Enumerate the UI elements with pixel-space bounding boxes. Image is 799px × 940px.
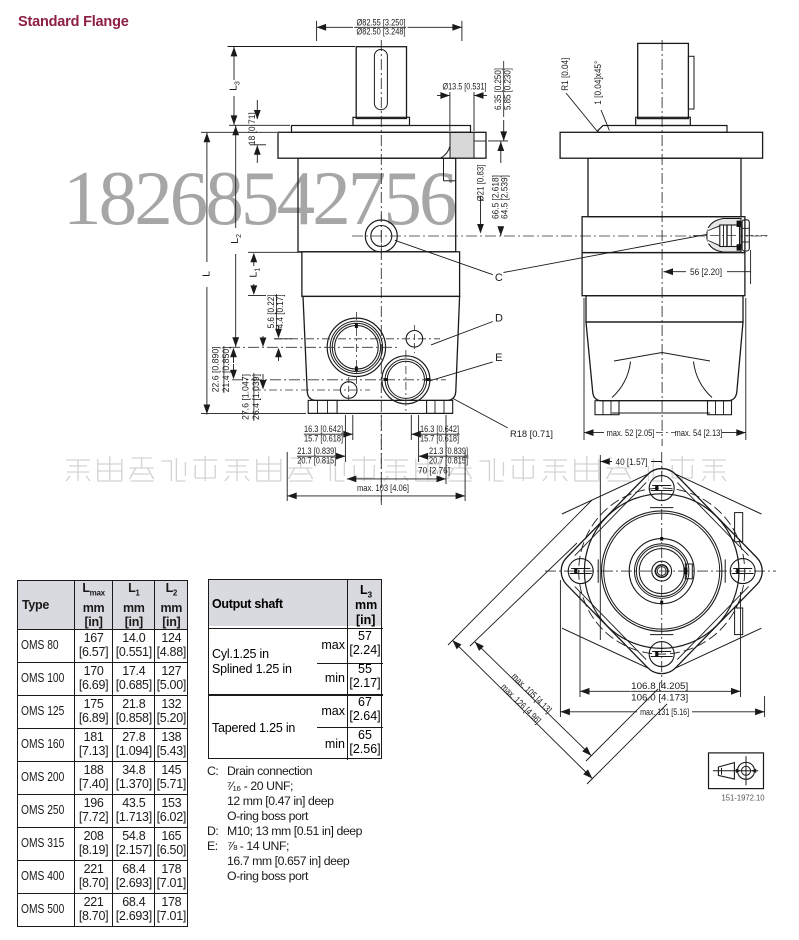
svg-text:E: E	[495, 352, 502, 364]
svg-text:151-1972.10: 151-1972.10	[722, 793, 765, 803]
svg-text:C: C	[495, 272, 503, 284]
svg-text:21.3 [0.839]: 21.3 [0.839]	[429, 446, 468, 456]
svg-text:15.7 [0.618]: 15.7 [0.618]	[420, 434, 459, 444]
svg-text:1: 1	[254, 268, 261, 272]
svg-text:R1 [0.04]: R1 [0.04]	[560, 58, 570, 91]
svg-text:27.6 [1.047]: 27.6 [1.047]	[241, 374, 251, 420]
svg-text:16.3 [0.642]: 16.3 [0.642]	[420, 424, 459, 434]
svg-text:max. 52 [2.05]: max. 52 [2.05]	[607, 428, 655, 438]
svg-text:20.7 [0.815]: 20.7 [0.815]	[297, 456, 336, 466]
svg-text:max. 54 [2.13]: max. 54 [2.13]	[675, 428, 723, 438]
svg-text:70 [2.76]: 70 [2.76]	[418, 465, 450, 475]
svg-text:16.3 [0.642]: 16.3 [0.642]	[304, 424, 343, 434]
svg-text:3: 3	[235, 81, 242, 85]
svg-text:26.4 [1.039]: 26.4 [1.039]	[251, 374, 261, 420]
svg-text:1 [0.04]x45°: 1 [0.04]x45°	[593, 61, 603, 105]
svg-text:21.4 [0.850]: 21.4 [0.850]	[221, 346, 231, 392]
svg-text:18 [0.71]: 18 [0.71]	[247, 112, 257, 145]
svg-text:20.7 [0.815]: 20.7 [0.815]	[429, 456, 468, 466]
svg-text:56 [2.20]: 56 [2.20]	[690, 267, 722, 277]
svg-text:106.8 [4.205]: 106.8 [4.205]	[631, 681, 688, 691]
svg-text:L: L	[201, 271, 213, 277]
svg-text:64.5 [2.539]: 64.5 [2.539]	[500, 175, 510, 219]
svg-text:max. 103 [4.06]: max. 103 [4.06]	[357, 483, 409, 493]
svg-text:22.6 [0.890]: 22.6 [0.890]	[211, 346, 221, 392]
svg-text:2: 2	[236, 234, 243, 238]
svg-text:Ø82.50 [3.248]: Ø82.50 [3.248]	[357, 27, 406, 37]
svg-text:Ø13.5 [0.531]: Ø13.5 [0.531]	[443, 81, 487, 91]
svg-text:15.7 [0.618]: 15.7 [0.618]	[304, 434, 343, 444]
svg-text:R18 [0.71]: R18 [0.71]	[510, 429, 553, 439]
svg-text:21.3 [0.839]: 21.3 [0.839]	[297, 446, 336, 456]
svg-text:Ø21 [0.83]: Ø21 [0.83]	[475, 165, 485, 202]
svg-text:40 [1.57]: 40 [1.57]	[616, 457, 648, 467]
svg-text:D: D	[495, 313, 503, 325]
svg-text:max. 131 [5.16]: max. 131 [5.16]	[640, 707, 689, 717]
svg-text:106.0 [4.173]: 106.0 [4.173]	[631, 692, 688, 702]
